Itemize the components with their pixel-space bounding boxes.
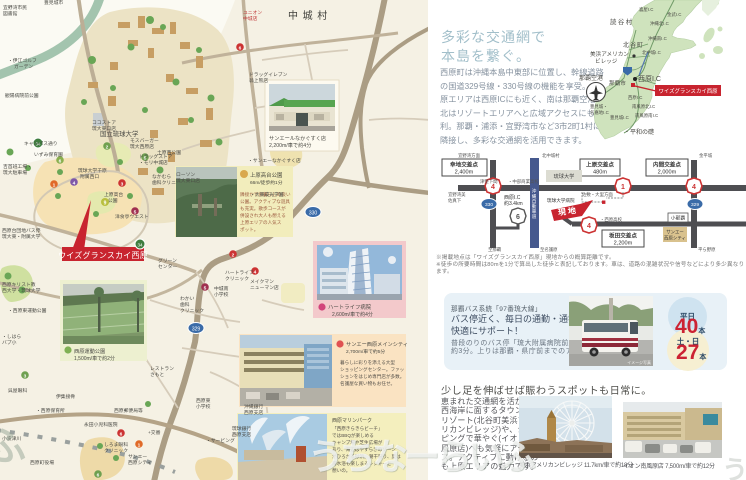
svg-text:呉屋眼科: 呉屋眼科 xyxy=(8,387,27,394)
svg-text:約3.4km: 約3.4km xyxy=(504,200,523,207)
svg-text:北谷町: 北谷町 xyxy=(623,41,644,49)
svg-text:上原高台公園: 上原高台公園 xyxy=(250,171,282,179)
svg-text:那覇市: 那覇市 xyxy=(609,79,626,87)
svg-text:6: 6 xyxy=(239,46,242,52)
svg-text:沖縄自動車道: 沖縄自動車道 xyxy=(531,188,537,220)
svg-text:・西原高校: ・西原高校 xyxy=(600,216,623,223)
svg-text:佐真下: 佐真下 xyxy=(448,197,462,204)
svg-text:ハートライフ病院: ハートライフ病院 xyxy=(328,303,372,311)
svg-text:2,200m/車で約4分: 2,200m/車で約4分 xyxy=(269,141,311,149)
svg-text:坂田交差点: 坂田交差点 xyxy=(609,232,637,240)
svg-text:ローソン: ローソン xyxy=(176,172,195,178)
svg-text:琉球大学: 琉球大学 xyxy=(554,172,575,180)
svg-text:メイクマン: メイクマン xyxy=(250,279,274,285)
svg-text:西原町役場: 西原町役場 xyxy=(30,459,54,466)
svg-text:2,200m: 2,200m xyxy=(614,241,633,247)
svg-text:ココストア: ココストア xyxy=(92,120,116,126)
svg-text:2,000m: 2,000m xyxy=(658,170,677,176)
svg-text:西原マリンパーク: 西原マリンパーク xyxy=(332,418,372,424)
svg-text:琉球大学千原: 琉球大学千原 xyxy=(78,167,107,174)
svg-text:観陽病院前公園: 観陽病院前公園 xyxy=(5,92,39,99)
svg-text:・西原東運動公園: ・西原東運動公園 xyxy=(8,307,47,314)
svg-text:琉大東口店: 琉大東口店 xyxy=(176,177,200,184)
svg-text:琉大西原店: 琉大西原店 xyxy=(130,143,154,150)
svg-text:・中部商業高校: ・中部商業高校 xyxy=(508,178,539,185)
svg-text:・サンエーなかぐすく店: ・サンエーなかぐすく店 xyxy=(248,157,301,164)
svg-text:ビレッジ: ビレッジ xyxy=(595,57,618,65)
svg-text:宜野湾方面: 宜野湾方面 xyxy=(458,152,481,159)
svg-text:・しはら: ・しはら xyxy=(2,334,21,340)
svg-text:中城村: 中城村 xyxy=(288,9,332,22)
svg-text:公園。アクティブな遊具: 公園。アクティブな遊具 xyxy=(240,198,290,205)
svg-text:4: 4 xyxy=(491,184,495,191)
svg-text:サンエールなかぐすく店: サンエールなかぐすく店 xyxy=(269,134,326,142)
svg-text:4: 4 xyxy=(587,223,591,230)
svg-text:いずみ保育園: いずみ保育園 xyxy=(34,151,63,158)
svg-text:1: 1 xyxy=(53,183,56,189)
svg-text:ニューマン店: ニューマン店 xyxy=(250,284,279,291)
svg-text:西原支店: 西原支店 xyxy=(244,409,263,416)
svg-text:豊見城市: 豊見城市 xyxy=(44,0,63,6)
svg-text:2: 2 xyxy=(232,253,235,259)
svg-text:西原I.C: 西原I.C xyxy=(638,75,661,83)
svg-text:1: 1 xyxy=(621,184,625,191)
svg-text:・伊江ゴルフ: ・伊江ゴルフ xyxy=(8,57,37,64)
svg-text:永田小児科医院: 永田小児科医院 xyxy=(84,421,118,428)
svg-text:ハートライフ: ハートライフ xyxy=(225,270,254,276)
svg-text:・西原保育所: ・西原保育所 xyxy=(36,407,65,414)
svg-text:ポット。: ポット。 xyxy=(240,226,258,232)
svg-text:歯科: 歯科 xyxy=(180,301,190,308)
svg-text:グリーン: グリーン xyxy=(158,257,177,264)
svg-text:2,400m: 2,400m xyxy=(455,170,474,176)
svg-text:喜屋I.C: 喜屋I.C xyxy=(639,6,653,13)
svg-text:美浜アメリカン: 美浜アメリカン xyxy=(590,50,629,58)
svg-text:・サービング: ・サービング xyxy=(206,437,235,444)
svg-text:伊集接骨: 伊集接骨 xyxy=(56,393,75,400)
svg-text:上原交差点: 上原交差点 xyxy=(586,161,614,169)
svg-text:5: 5 xyxy=(204,286,207,292)
svg-text:キャンパス通り: キャンパス通り xyxy=(24,140,58,147)
svg-text:西原シティ: 西原シティ xyxy=(128,460,152,466)
svg-text:レストラン: レストラン xyxy=(150,366,174,372)
svg-text:ワイズグランスカイ西原: ワイズグランスカイ西原 xyxy=(658,87,718,95)
svg-text:小那覇: 小那覇 xyxy=(671,215,686,222)
svg-text:琉球銀行: 琉球銀行 xyxy=(232,425,251,432)
svg-text:330: 330 xyxy=(485,202,493,208)
svg-text:豊見城I.C: 豊見城I.C xyxy=(610,114,629,121)
svg-text:内間交差点: 内間交差点 xyxy=(653,161,681,169)
svg-text:上原高台: 上原高台 xyxy=(104,191,123,198)
svg-text:1: 1 xyxy=(138,443,141,449)
svg-text:琉大駐車場: 琉大駐車場 xyxy=(3,169,27,176)
svg-text:バプ小: バプ小 xyxy=(2,339,17,346)
svg-text:モスバーガー: モスバーガー xyxy=(130,137,159,144)
svg-text:上原エリアの人気ス: 上原エリアの人気ス xyxy=(240,219,282,226)
svg-text:中城南: 中城南 xyxy=(214,285,229,292)
svg-text:3: 3 xyxy=(24,374,27,380)
svg-text:北中城村: 北中城村 xyxy=(542,152,560,159)
svg-text:宜野湾市民: 宜野湾市民 xyxy=(3,4,27,11)
svg-text:洋食亭ウエスト: 洋食亭ウエスト xyxy=(115,213,149,220)
svg-text:4: 4 xyxy=(254,270,257,276)
svg-text:至名護原: 至名護原 xyxy=(540,246,558,252)
svg-text:6: 6 xyxy=(120,432,123,438)
svg-text:西原キリスト教: 西原キリスト教 xyxy=(2,281,36,288)
svg-text:イメージ写真: イメージ写真 xyxy=(627,359,651,365)
svg-text:2: 2 xyxy=(106,145,109,151)
svg-text:クリニック: クリニック xyxy=(180,308,204,314)
svg-text:ショッピングセンター。ファッ: ショッピングセンター。ファッ xyxy=(340,366,404,373)
svg-text:土原西公園: 土原西公園 xyxy=(157,149,181,156)
svg-text:歯科クリニ: 歯科クリニ xyxy=(152,179,176,186)
svg-text:1,500m/車で約2分: 1,500m/車で約2分 xyxy=(74,355,115,362)
svg-text:宜野湾美: 宜野湾美 xyxy=(448,191,466,198)
svg-text:琉大東・附属大学: 琉大東・附属大学 xyxy=(2,233,41,240)
svg-text:480m: 480m xyxy=(593,170,607,176)
svg-text:佐敷・大里方面: 佐敷・大里方面 xyxy=(582,191,613,198)
svg-text:北中城I.C: 北中城I.C xyxy=(642,49,661,56)
svg-text:センター: センター xyxy=(158,263,177,270)
svg-text:附属西口: 附属西口 xyxy=(80,173,99,180)
svg-text:図書館: 図書館 xyxy=(3,10,18,17)
svg-text:西原東: 西原東 xyxy=(196,397,211,404)
svg-text:平ら野原: 平ら野原 xyxy=(698,246,716,252)
svg-text:豊見城・: 豊見城・ xyxy=(590,103,608,110)
svg-text:西原支店: 西原支店 xyxy=(232,431,251,438)
svg-text:クリニック: クリニック xyxy=(225,276,249,282)
svg-text:330: 330 xyxy=(309,211,318,217)
svg-text:西原台団地バス停: 西原台団地バス停 xyxy=(2,227,41,234)
svg-text:ユニオン: ユニオン xyxy=(243,10,262,16)
svg-text:+交番: +交番 xyxy=(148,429,161,436)
svg-text:至那覇: 至那覇 xyxy=(488,246,502,252)
svg-text:34: 34 xyxy=(137,243,143,248)
svg-text:・モリ中城店: ・モリ中城店 xyxy=(139,159,168,166)
svg-text:66m/徒歩約1分: 66m/徒歩約1分 xyxy=(250,179,283,186)
svg-text:吉首班工場・: 吉首班工場・ xyxy=(3,163,32,170)
svg-text:小学校: 小学校 xyxy=(214,291,229,298)
svg-text:さもと: さもと xyxy=(150,371,164,378)
svg-text:329: 329 xyxy=(691,202,699,208)
svg-text:暮らしに彩りを添える大型: 暮らしに彩りを添える大型 xyxy=(340,359,395,366)
svg-text:西原郵便局等: 西原郵便局等 xyxy=(114,407,143,414)
svg-text:金武I.C: 金武I.C xyxy=(667,11,681,17)
svg-text:3: 3 xyxy=(121,182,124,188)
svg-text:西大学・琉球大学: 西大学・琉球大学 xyxy=(2,287,41,294)
svg-text:サンエー: サンエー xyxy=(128,454,147,460)
svg-text:琉大東口店: 琉大東口店 xyxy=(92,125,116,132)
svg-text:南風原南I.C: 南風原南I.C xyxy=(635,112,658,119)
svg-text:公園: 公園 xyxy=(108,198,118,204)
svg-text:金平城: 金平城 xyxy=(699,152,713,159)
svg-text:6: 6 xyxy=(97,473,100,479)
svg-text:沖縄北I.C: 沖縄北I.C xyxy=(650,20,669,27)
svg-text:2,600m/車で約4分: 2,600m/車で約4分 xyxy=(332,311,373,318)
svg-text:サンエー西原メインシティ: サンエー西原メインシティ xyxy=(346,341,408,348)
svg-text:翁上熊店: 翁上熊店 xyxy=(249,77,268,84)
svg-text:2,700m/車で約5分: 2,700m/車で約5分 xyxy=(346,348,385,355)
svg-text:・平和の礎: ・平和の礎 xyxy=(624,128,654,136)
svg-text:沖縄銀行: 沖縄銀行 xyxy=(244,403,263,410)
svg-text:も充実。散歩コースが: も充実。散歩コースが xyxy=(240,205,286,212)
svg-text:9: 9 xyxy=(104,201,107,207)
svg-text:併設され大人も憩える: 併設され大人も憩える xyxy=(240,212,286,219)
svg-text:南風原北I.C: 南風原北I.C xyxy=(632,103,655,110)
svg-text:ションをはじめ専門店が多数。: ションをはじめ専門店が多数。 xyxy=(340,373,404,380)
svg-text:329: 329 xyxy=(192,327,201,333)
svg-text:ガーデン: ガーデン xyxy=(14,63,33,70)
svg-text:6: 6 xyxy=(516,214,520,221)
svg-text:沖縄南I.C: 沖縄南I.C xyxy=(648,35,667,42)
svg-text:・大東成光学園: ・大東成光学園 xyxy=(250,191,284,198)
svg-text:中城店: 中城店 xyxy=(243,15,258,22)
svg-text:ウイズグランスカイ西原: ウイズグランスカイ西原 xyxy=(58,250,148,260)
svg-text:4: 4 xyxy=(692,184,696,191)
svg-text:しろま眼科: しろま眼科 xyxy=(104,441,128,448)
svg-text:名護屋な買い物もお任せ。: 名護屋な買い物もお任せ。 xyxy=(340,380,395,387)
svg-text:読谷村: 読谷村 xyxy=(610,17,634,26)
svg-text:ドラッグイレブン: ドラッグイレブン xyxy=(249,71,288,78)
svg-text:琉球大学病院: 琉球大学病院 xyxy=(547,197,575,204)
svg-text:6: 6 xyxy=(59,159,62,165)
svg-text:名嘉地I.C: 名嘉地I.C xyxy=(590,109,609,116)
svg-text:クリニック: クリニック xyxy=(104,448,128,454)
svg-text:4: 4 xyxy=(73,181,76,187)
svg-text:幸地交差点: 幸地交差点 xyxy=(450,161,478,169)
svg-text:西原運動公園: 西原運動公園 xyxy=(74,347,105,355)
svg-text:津堅下間: 津堅下間 xyxy=(480,178,498,185)
svg-text:那覇空港: 那覇空港 xyxy=(579,74,603,82)
svg-text:なかむら: なかむら xyxy=(152,173,171,180)
svg-text:小学校: 小学校 xyxy=(196,403,211,410)
svg-text:わかい: わかい xyxy=(180,295,195,302)
